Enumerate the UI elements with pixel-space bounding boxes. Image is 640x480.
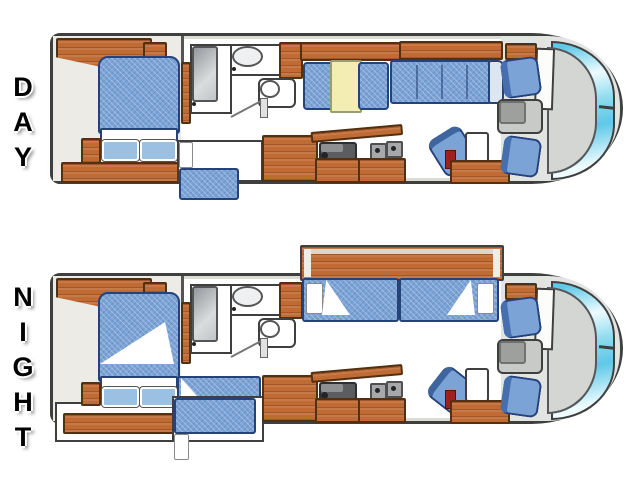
slide-out-roof-cap-left [304, 249, 311, 277]
day-label: DAY [7, 72, 38, 177]
driver-seat [499, 296, 542, 340]
overhead-cabinet-mid [300, 42, 401, 61]
passenger-seat [499, 135, 542, 179]
bed-pillow-left [102, 140, 139, 161]
dinette-bench-right [358, 62, 389, 110]
shower-drain [192, 342, 196, 346]
queen-bed [98, 56, 180, 134]
lavatory-counter [230, 44, 282, 76]
toilet-bowl [260, 80, 280, 98]
bunk-bed-pulled-out [172, 396, 264, 442]
pantry-cabinet [262, 135, 318, 182]
rv-body-day [50, 33, 623, 184]
lavatory-counter [230, 284, 282, 316]
rv-floorplan-image: DAY [0, 0, 640, 480]
bed-pillow-right [140, 140, 177, 161]
kitchen-sink-basin [321, 144, 343, 152]
end-table [465, 132, 489, 163]
toilet-bowl [260, 320, 280, 338]
shower-pan [192, 286, 218, 342]
linen-cabinet [279, 282, 303, 319]
rv-body-night [50, 273, 623, 424]
plan-night: NIGHT [0, 240, 640, 480]
engine-console-lid [499, 341, 526, 364]
counter-base-1 [315, 398, 360, 423]
counter-base-2 [358, 158, 406, 183]
lavatory-sink [232, 286, 263, 307]
bunk-mattress [174, 398, 256, 434]
bed-pillow-left [102, 387, 139, 407]
toilet [258, 78, 296, 108]
toilet [258, 318, 296, 348]
engine-console [497, 339, 543, 374]
overhead-cabinet-front [399, 41, 503, 60]
end-table [465, 368, 489, 402]
bunk-pillow [174, 434, 189, 460]
plan-day: DAY [0, 0, 640, 240]
lavatory-sink [232, 46, 263, 67]
stove-burner-right [386, 141, 403, 158]
engine-console [497, 99, 543, 134]
kitchen-sink-basin [321, 384, 343, 392]
bath-door-swing [231, 340, 262, 358]
shower-drain [192, 102, 196, 106]
engine-console-lid [499, 101, 526, 124]
dresser [61, 162, 187, 183]
sofa-bed-pillow [477, 283, 494, 314]
bath-door-swing [231, 100, 262, 118]
slide-out-roof-edge [304, 249, 500, 254]
stove-burner-right [386, 381, 403, 398]
faucet [232, 67, 236, 71]
nightstand [81, 138, 101, 164]
shower-pan [192, 46, 218, 102]
sofa [390, 60, 492, 104]
nightstand [81, 382, 101, 406]
sofa-bunk [177, 140, 263, 182]
counter-base-2 [358, 398, 406, 423]
night-label: NIGHT [7, 282, 38, 457]
shower [190, 284, 232, 354]
passenger-seat [499, 375, 542, 419]
pantry-cabinet [262, 375, 318, 422]
bunk-mattress [179, 168, 239, 200]
slide-out-roof-cap-right [493, 249, 500, 277]
driver-seat [499, 56, 542, 100]
faucet [232, 307, 236, 311]
dinette-bed-pillow [306, 283, 323, 314]
bunk-pillow [179, 142, 193, 168]
counter-base-1 [315, 158, 360, 183]
bunk-blanket-fold [174, 460, 200, 480]
shower [190, 44, 232, 114]
slide-out-roof [300, 245, 504, 281]
